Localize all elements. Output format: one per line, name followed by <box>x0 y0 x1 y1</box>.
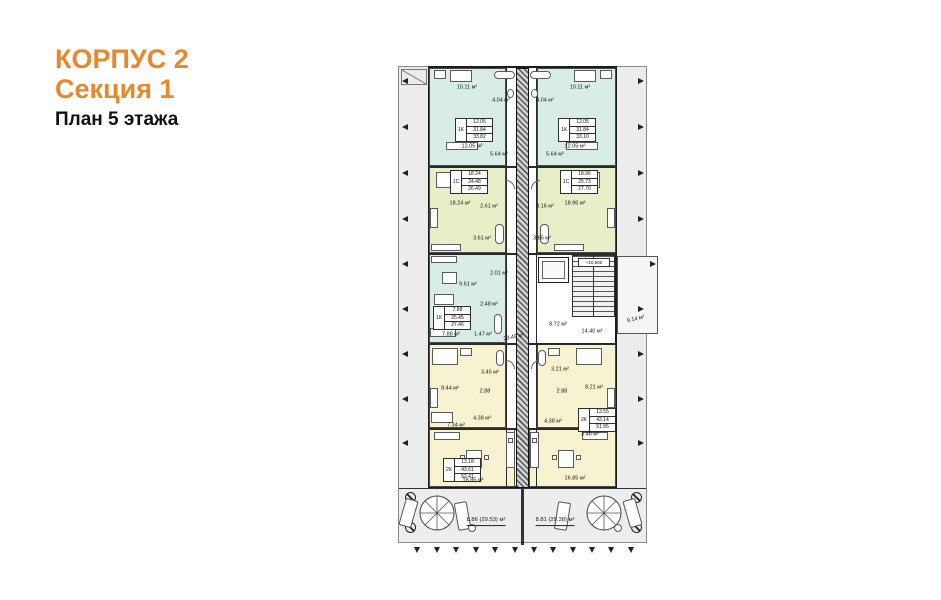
dimension-arrow-icon <box>402 78 408 84</box>
stamp-area: 31.84 <box>570 127 595 135</box>
room-area-label: 2.61 м² <box>480 204 498 210</box>
walkway-left <box>399 67 428 488</box>
dimension-arrow-icon <box>434 547 440 553</box>
bed <box>576 348 602 365</box>
bed <box>450 70 472 82</box>
apartment-type: 1С <box>451 171 462 193</box>
sink <box>508 438 513 443</box>
stove <box>532 438 537 443</box>
room-area-label: 7.34 м² <box>447 423 465 429</box>
room-area-label: 2.88 <box>480 389 491 395</box>
apartment-type: 2К <box>579 409 590 431</box>
patio-table <box>614 524 622 532</box>
stamp-area: 43.61 <box>455 467 480 475</box>
shaft-divider <box>521 488 524 545</box>
section-title: Секция 1 <box>55 74 189 104</box>
apartment-type: 2К <box>444 459 455 481</box>
dimension-arrow-icon <box>589 547 595 553</box>
apartment-stamp: 1К 7.88 25.45 27.46 <box>433 306 471 330</box>
room-area-label: 2.48 м² <box>480 302 498 308</box>
dining-table <box>442 272 457 284</box>
terrace-area-label: 8.86 (29.53) м² <box>467 518 506 526</box>
room-area-label: 3.21 м² <box>551 367 569 373</box>
dimension-arrow-icon <box>473 547 479 553</box>
room-area-label: 4.04 м² <box>536 98 554 104</box>
dimension-arrow-icon <box>531 547 537 553</box>
apartment-type: 1С <box>561 171 572 193</box>
room-area-label: 18.24 м² <box>450 201 471 207</box>
spiral-stair-icon <box>418 494 456 532</box>
stamp-total-area: 51.95 <box>590 424 615 431</box>
stamp-area: 31.84 <box>467 127 492 135</box>
room-area-label: 16.85 м² <box>565 476 586 482</box>
bathtub <box>530 71 551 79</box>
room-area-label: 3.16 м² <box>536 204 554 210</box>
apartment-type: 1К <box>559 119 570 141</box>
dimension-arrow-icon <box>402 124 408 130</box>
room-area-label: 7.88 м² <box>442 332 460 338</box>
room-area-label: 2.01 м² <box>490 271 508 277</box>
bathtub <box>495 224 504 244</box>
stamp-area: 24.48 <box>462 179 487 187</box>
room-area-label: 3.65 м² <box>533 236 551 242</box>
lobby-area-label: 8.72 м² <box>549 322 567 328</box>
dimension-arrow-icon <box>650 261 656 267</box>
dimension-arrow-icon <box>402 351 408 357</box>
sofa <box>430 208 438 228</box>
dimension-arrow-icon <box>402 440 408 446</box>
room-area-label: 3.45 м² <box>481 370 499 376</box>
room-area-label: 8.44 м² <box>441 386 459 392</box>
room-area-label: 3.46 м² <box>581 432 599 438</box>
apartment-stamp: 1С 18.96 25.73 27.70 <box>560 170 598 194</box>
chair <box>552 455 557 460</box>
room-area-label: 18.96 м² <box>565 201 586 207</box>
room-area-label: 10.11 м² <box>457 85 478 91</box>
elevation-mark: +10.500 <box>578 258 610 267</box>
stamp-living-area: 13.18 <box>455 459 480 467</box>
stamp-total-area: 33.10 <box>570 134 595 141</box>
stamp-living-area: 7.88 <box>445 307 470 315</box>
room-area-label: 5.64 м² <box>546 152 564 158</box>
bed <box>432 348 458 365</box>
apartment-stamp: 1К 12.05 31.84 33.10 <box>558 118 596 142</box>
room-area-label: 12.05 м² <box>565 144 586 150</box>
kitchen-counter <box>431 256 457 263</box>
dimension-arrow-icon <box>414 547 420 553</box>
dimension-arrow-icon <box>638 351 644 357</box>
kitchen-counter <box>431 244 461 251</box>
floor-title: План 5 этажа <box>55 109 189 131</box>
wardrobe <box>548 348 560 356</box>
dimension-arrow-icon <box>638 440 644 446</box>
utility-shaft <box>516 68 529 488</box>
dimension-arrow-icon <box>638 216 644 222</box>
dimension-arrow-icon <box>402 396 408 402</box>
bathtub <box>494 314 502 334</box>
dimension-arrow-icon <box>402 306 408 312</box>
room-area-label: 10.11 м² <box>570 85 591 91</box>
title-block: КОРПУС 2 Секция 1 План 5 этажа <box>55 44 189 131</box>
dimension-arrow-icon <box>608 547 614 553</box>
dimension-arrow-icon <box>550 547 556 553</box>
bathtub <box>494 71 515 79</box>
room-area-label: 9.61 м² <box>459 282 477 288</box>
chair <box>576 455 581 460</box>
page: { "title": { "building": "КОРПУС 2", "se… <box>0 0 941 600</box>
hall-area-label: 14.40 м² <box>582 329 603 335</box>
stamp-total-area: 27.70 <box>572 186 597 193</box>
dimension-arrow-icon <box>638 78 644 84</box>
elevator-cab <box>542 261 565 279</box>
terrace-area-label: 8.81 (29.38) м² <box>536 518 575 526</box>
dimension-arrow-icon <box>402 170 408 176</box>
sofa <box>607 388 615 408</box>
room-area-label: 2.88 <box>557 389 568 395</box>
stamp-area: 43.14 <box>590 417 615 425</box>
bed <box>434 294 454 305</box>
floor-plan: +10.500 <box>398 58 660 566</box>
dimension-arrow-icon <box>628 547 634 553</box>
dimension-arrow-icon <box>512 547 518 553</box>
wardrobe <box>434 70 446 79</box>
stamp-total-area: 26.49 <box>462 186 487 193</box>
dining-table <box>558 450 574 468</box>
apartment-type: 1К <box>456 119 467 141</box>
stamp-area: 25.45 <box>445 315 470 323</box>
wall <box>536 68 537 488</box>
room-area-label: 12.05 м² <box>462 144 483 150</box>
wardrobe <box>600 70 612 79</box>
building-title: КОРПУС 2 <box>55 44 189 74</box>
room-area-label: 8.21 м² <box>585 385 603 391</box>
kitchen-counter <box>554 244 584 251</box>
bathtub <box>496 350 504 366</box>
apartment-stamp: 1К 12.05 31.84 33.82 <box>455 118 493 142</box>
apartment-type: 1К <box>434 307 445 329</box>
stamp-total-area: 27.46 <box>445 322 470 329</box>
room-area-label: 4.38 м² <box>544 419 562 425</box>
room-area-label: 4.04 м² <box>492 98 510 104</box>
room-area-label: 5.64 м² <box>490 152 508 158</box>
stamp-total-area: 33.82 <box>467 134 492 141</box>
dimension-arrow-icon <box>402 261 408 267</box>
dimension-arrow-icon <box>638 170 644 176</box>
stamp-area: 25.73 <box>572 179 597 187</box>
stamp-living-area: 13.55 <box>590 409 615 417</box>
room-area-label: 1.47 м² <box>474 332 492 338</box>
bathtub <box>538 350 546 366</box>
apartment-stamp: 1С 18.24 24.48 26.49 <box>450 170 488 194</box>
stamp-living-area: 18.24 <box>462 171 487 179</box>
dimension-arrow-icon <box>402 216 408 222</box>
chair <box>484 455 489 460</box>
dimension-arrow-icon <box>492 547 498 553</box>
dimension-arrow-icon <box>638 124 644 130</box>
stamp-living-area: 12.05 <box>467 119 492 127</box>
apartment-stamp: 2К 13.55 43.14 51.95 <box>578 408 616 432</box>
stamp-living-area: 12.05 <box>570 119 595 127</box>
room-area-label: 16.85 м² <box>463 478 484 484</box>
stamp-living-area: 18.96 <box>572 171 597 179</box>
bed <box>574 70 596 82</box>
dimension-arrow-icon <box>570 547 576 553</box>
room-area-label: 3.61 м² <box>473 236 491 242</box>
sofa <box>607 208 615 228</box>
room-area-label: 4.38 м² <box>473 416 491 422</box>
dimension-arrow-icon <box>453 547 459 553</box>
dimension-arrow-icon <box>638 396 644 402</box>
sofa <box>430 388 438 408</box>
dimension-arrow-icon <box>638 306 644 312</box>
elevator <box>538 257 569 283</box>
wardrobe <box>460 348 472 356</box>
wall <box>506 68 507 488</box>
sofa <box>434 432 460 440</box>
